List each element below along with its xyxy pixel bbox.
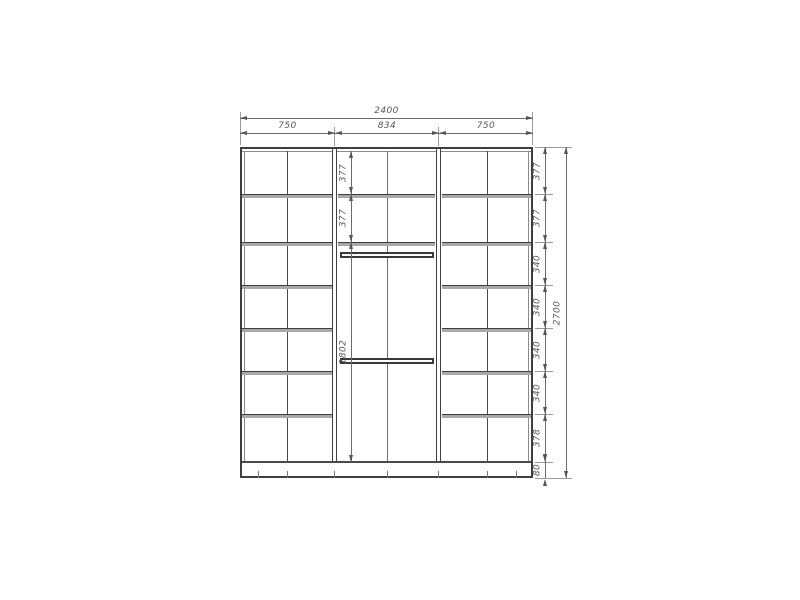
foot-tick — [387, 471, 388, 478]
dim-row-3-label: 340 — [534, 254, 543, 272]
shelf-line — [442, 328, 531, 332]
dim-plinth-height: 80 — [545, 462, 546, 478]
foot-tick — [334, 471, 335, 478]
shelf-line — [442, 194, 531, 198]
dim-row-2: 377 — [545, 194, 546, 242]
dim-row-4: 340 — [545, 285, 546, 328]
dim-hanging-height-label: 1802 — [340, 340, 349, 365]
dim-row-4-label: 340 — [534, 297, 543, 315]
shelf-line — [242, 194, 332, 198]
dim-row-7-label: 378 — [534, 429, 543, 447]
dim-total-width: 2400 — [240, 118, 533, 119]
shelf-line — [242, 414, 332, 418]
foot-tick — [438, 471, 439, 478]
plinth-top-line — [242, 461, 531, 463]
shelf-line — [242, 371, 332, 375]
dim-center-row-1-label: 377 — [340, 163, 349, 181]
dim-center-row-2: 377 — [351, 194, 352, 242]
shelf-line — [442, 371, 531, 375]
dim-row-6-label: 340 — [534, 383, 543, 401]
dim-right-section-label: 750 — [477, 122, 495, 131]
hanging-rod-lower — [340, 358, 434, 364]
foot-tick — [487, 471, 488, 478]
dim-row-2-label: 377 — [534, 209, 543, 227]
partition-center-right — [436, 149, 441, 462]
shelf-line — [242, 285, 332, 289]
foot-tick — [258, 471, 259, 478]
dim-left-section-label: 750 — [278, 122, 296, 131]
shelf-line — [242, 242, 332, 246]
dim-right-section-width: 750 — [439, 133, 533, 134]
dim-center-row-1: 377 — [351, 151, 352, 194]
shelf-line — [242, 328, 332, 332]
dim-center-section-width: 834 — [335, 133, 439, 134]
shelf-line — [442, 242, 531, 246]
dim-row-6: 340 — [545, 371, 546, 414]
dim-center-section-label: 834 — [378, 122, 396, 131]
foot-tick — [287, 471, 288, 478]
dim-row-5: 340 — [545, 328, 546, 371]
dim-row-5-label: 340 — [534, 340, 543, 358]
dim-plinth-height-label: 80 — [534, 464, 543, 476]
extension-line — [535, 462, 553, 463]
extension-line — [535, 478, 572, 479]
dim-row-1-label: 377 — [534, 161, 543, 179]
dim-left-section-width: 750 — [240, 133, 335, 134]
partition-left-center — [332, 149, 337, 462]
dim-row-1: 377 — [545, 147, 546, 194]
shelf-line — [442, 285, 531, 289]
foot-tick — [516, 471, 517, 478]
dim-total-height: 2700 — [566, 147, 567, 478]
shelf-line — [442, 414, 531, 418]
dim-hanging-height: 1802 — [351, 242, 352, 462]
extension-line — [334, 127, 335, 146]
dim-center-row-2-label: 377 — [340, 209, 349, 227]
dim-row-3: 340 — [545, 242, 546, 285]
drawing-canvas: 2400 750 834 750 377 377 340 340 340 340… — [0, 0, 800, 600]
extension-line — [438, 127, 439, 146]
hanging-rod-upper — [340, 252, 434, 258]
dim-total-width-label: 2400 — [374, 107, 399, 116]
dim-total-height-label: 2700 — [554, 300, 563, 325]
